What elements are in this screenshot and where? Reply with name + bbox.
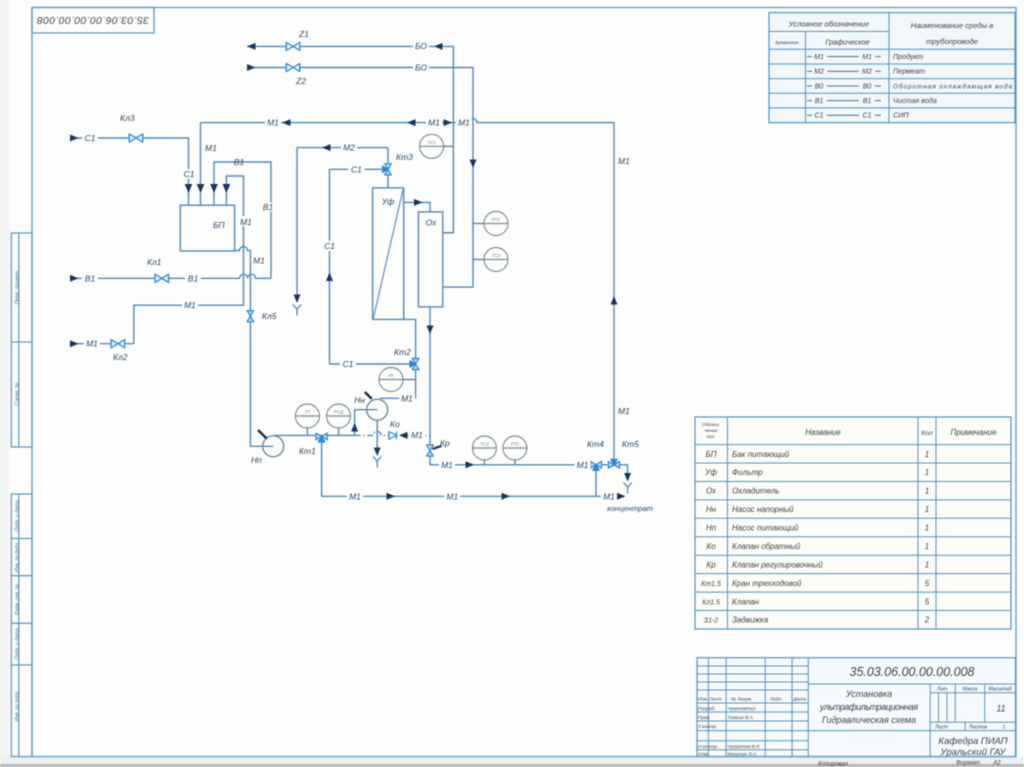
svg-text:Дата: Дата	[793, 697, 807, 703]
svg-text:1: 1	[925, 560, 929, 569]
svg-text:Кт5: Кт5	[622, 439, 639, 449]
svg-text:1: 1	[925, 450, 929, 459]
svg-text:Примечание: Примечание	[950, 428, 997, 437]
svg-text:концентрат: концентрат	[607, 504, 653, 513]
svg-text:В1: В1	[85, 273, 96, 283]
svg-text:Н.контр.: Н.контр.	[698, 744, 718, 750]
svg-text:Задвижка: Задвижка	[732, 616, 769, 625]
svg-text:А2: А2	[992, 761, 1001, 767]
svg-text:М2: М2	[862, 69, 872, 76]
svg-text:В0: В0	[815, 83, 824, 90]
svg-text:М1: М1	[814, 54, 824, 61]
svg-text:Охладитель: Охладитель	[732, 487, 779, 496]
svg-text:Утв.: Утв.	[698, 752, 709, 758]
svg-text:ультрафильтрационная: ультрафильтрационная	[819, 702, 918, 712]
svg-text:С1: С1	[863, 113, 872, 120]
svg-text:М2: М2	[814, 69, 824, 76]
svg-text:Фильтр: Фильтр	[732, 468, 763, 477]
svg-text:2: 2	[924, 616, 930, 625]
svg-text:М1: М1	[349, 491, 361, 501]
svg-text:Кол: Кол	[921, 430, 933, 437]
svg-text:М1: М1	[267, 118, 279, 128]
svg-text:М1: М1	[411, 430, 423, 440]
svg-text:В1: В1	[263, 202, 274, 212]
svg-text:РСД: РСД	[334, 410, 344, 415]
svg-text:поз.: поз.	[707, 435, 716, 440]
svg-text:М1: М1	[618, 406, 630, 416]
svg-text:РI: РI	[389, 373, 394, 378]
svg-text:БО: БО	[415, 41, 427, 51]
svg-text:Уф: Уф	[381, 197, 395, 207]
svg-text:Кт4: Кт4	[587, 439, 604, 449]
svg-text:Обозна-: Обозна-	[702, 422, 721, 428]
svg-text:чение: чение	[704, 429, 717, 434]
svg-text:М1: М1	[441, 460, 453, 470]
svg-text:Уф: Уф	[704, 468, 717, 477]
svg-text:М1: М1	[253, 256, 265, 266]
svg-text:Пров.: Пров.	[698, 715, 711, 721]
svg-text:Оборотная охлаждающая вода: Оборотная охлаждающая вода	[893, 82, 1012, 90]
svg-text:М1: М1	[618, 156, 630, 166]
svg-text:РТ1: РТ1	[492, 217, 501, 222]
svg-text:Подп. и дата: Подп. и дата	[14, 628, 20, 660]
svg-text:Кл1.5: Кл1.5	[702, 599, 720, 606]
svg-text:Перв. примен.: Перв. примен.	[14, 270, 20, 304]
svg-text:Инв. № дубл.: Инв. № дубл.	[14, 542, 20, 573]
svg-text:трубопроводе: трубопроводе	[926, 37, 978, 46]
svg-text:Формат: Формат	[956, 761, 980, 767]
svg-text:1: 1	[925, 505, 929, 514]
svg-text:З1-2: З1-2	[704, 618, 719, 625]
svg-text:Кт3: Кт3	[396, 152, 413, 162]
svg-text:БП: БП	[213, 220, 226, 230]
svg-text:Кр: Кр	[706, 560, 716, 569]
svg-text:Кран трехходовой: Кран трехходовой	[732, 579, 802, 588]
svg-text:М1: М1	[205, 143, 217, 153]
svg-text:Чукреевских: Чукреевских	[728, 706, 757, 712]
svg-text:Т.контр.: Т.контр.	[698, 724, 717, 730]
svg-text:Кафедра ПИАП: Кафедра ПИАП	[938, 736, 1007, 747]
svg-text:М1: М1	[86, 339, 98, 349]
svg-text:М1: М1	[603, 491, 615, 501]
svg-text:С1: С1	[351, 164, 362, 174]
svg-text:Взам. инв. №: Взам. инв. №	[14, 583, 20, 615]
svg-text:11: 11	[996, 704, 1005, 714]
svg-text:БО: БО	[415, 63, 427, 73]
svg-text:СИП: СИП	[893, 111, 909, 120]
svg-text:Разраб.: Разраб.	[698, 706, 715, 712]
svg-text:1: 1	[925, 487, 929, 496]
svg-text:Кт1.5: Кт1.5	[701, 581, 721, 588]
svg-text:ТС1: ТС1	[427, 140, 436, 145]
svg-text:ТС2: ТС2	[492, 253, 501, 258]
svg-text:М1: М1	[240, 217, 252, 227]
svg-text:1: 1	[925, 524, 929, 533]
svg-text:Гидравлическая схема: Гидравлическая схема	[822, 715, 916, 725]
svg-text:В0: В0	[863, 83, 872, 90]
svg-text:Насос напорный: Насос напорный	[732, 505, 794, 514]
svg-text:Клапан регулировочный: Клапан регулировочный	[732, 560, 823, 569]
svg-text:Справ. №: Справ. №	[14, 382, 20, 406]
svg-text:Установка: Установка	[845, 689, 892, 699]
svg-text:М1: М1	[446, 491, 458, 501]
svg-text:ТС3: ТС3	[480, 442, 489, 447]
svg-text:Насос питающий: Насос питающий	[732, 524, 799, 533]
svg-text:РТ2: РТ2	[511, 442, 520, 447]
svg-text:1: 1	[925, 468, 929, 477]
svg-text:Минухин Л.А.: Минухин Л.А.	[728, 752, 758, 758]
svg-text:Наименование среды в: Наименование среды в	[911, 21, 994, 30]
svg-text:М1: М1	[862, 54, 872, 61]
svg-text:Лист: Лист	[934, 725, 948, 731]
svg-text:Лит.: Лит.	[936, 687, 949, 693]
svg-text:Пермеат: Пермеат	[893, 67, 925, 76]
svg-text:В1: В1	[188, 273, 199, 283]
svg-text:Продукт: Продукт	[893, 52, 923, 61]
svg-text:М1: М1	[577, 460, 589, 470]
svg-text:Кл3: Кл3	[120, 113, 135, 123]
svg-text:С1: С1	[184, 169, 195, 179]
svg-text:Подп.: Подп.	[770, 697, 783, 703]
svg-text:С1: С1	[85, 133, 96, 143]
svg-text:Нн: Нн	[354, 395, 365, 405]
svg-text:1: 1	[925, 542, 929, 551]
svg-text:5: 5	[925, 597, 930, 606]
svg-text:М2: М2	[343, 143, 355, 153]
svg-text:Кл5: Кл5	[262, 311, 277, 321]
svg-text:Кл2: Кл2	[113, 352, 128, 362]
svg-text:Клапан: Клапан	[732, 597, 759, 606]
svg-text:Масса: Масса	[963, 687, 978, 693]
svg-text:№ докум.: № докум.	[731, 697, 752, 703]
svg-text:Z1: Z1	[298, 29, 309, 39]
svg-text:Название: Название	[805, 428, 841, 437]
svg-text:Графическое: Графическое	[825, 38, 869, 47]
svg-text:Z2: Z2	[295, 76, 306, 86]
svg-text:Масштаб: Масштаб	[988, 687, 1012, 693]
svg-text:Бак питающий: Бак питающий	[732, 450, 790, 459]
svg-text:Листов: Листов	[968, 725, 988, 731]
svg-text:Нн: Нн	[706, 505, 717, 514]
svg-text:35.03.06.00.00.00.008: 35.03.06.00.00.00.008	[850, 665, 975, 679]
svg-text:Нп: Нп	[706, 524, 717, 533]
svg-text:Кт1: Кт1	[299, 446, 316, 456]
svg-text:Ох: Ох	[706, 487, 717, 496]
svg-text:С1: С1	[343, 359, 354, 369]
svg-text:1: 1	[1003, 725, 1006, 731]
svg-text:Лист: Лист	[709, 697, 722, 703]
svg-text:Ко: Ко	[706, 542, 716, 551]
svg-text:Копировал: Копировал	[818, 762, 848, 767]
svg-text:Чистая вода: Чистая вода	[893, 96, 937, 105]
svg-text:Нусратов В.Р.: Нусратов В.Р.	[728, 744, 761, 750]
svg-text:БП: БП	[705, 450, 716, 459]
svg-text:Уральский ГАУ: Уральский ГАУ	[939, 747, 1006, 758]
svg-text:Подп. и дата: Подп. и дата	[14, 500, 20, 532]
svg-text:Нп: Нп	[251, 455, 262, 465]
svg-text:Кт2: Кт2	[394, 347, 411, 357]
svg-text:Ко: Ко	[390, 419, 400, 429]
svg-text:Ох: Ох	[426, 218, 437, 228]
svg-text:Кл1: Кл1	[147, 257, 162, 267]
svg-text:С1: С1	[815, 113, 824, 120]
svg-text:М1: М1	[458, 118, 470, 128]
svg-text:Изм.: Изм.	[698, 697, 708, 703]
svg-text:Условное обозначение: Условное обозначение	[788, 20, 870, 29]
svg-text:М1: М1	[184, 300, 196, 310]
svg-text:Клапан обратный: Клапан обратный	[732, 542, 801, 551]
svg-text:Буквенное: Буквенное	[775, 40, 799, 46]
svg-text:Кр: Кр	[440, 438, 450, 448]
svg-text:35.03.06.00.00.00.008: 35.03.06.00.00.00.008	[37, 14, 149, 26]
svg-text:В1: В1	[863, 98, 872, 105]
svg-text:5: 5	[925, 579, 930, 588]
svg-text:С1: С1	[324, 241, 335, 251]
svg-text:М1: М1	[401, 393, 413, 403]
svg-text:В1: В1	[815, 98, 824, 105]
svg-text:Инв. № подл.: Инв. № подл.	[14, 690, 20, 721]
svg-text:М1: М1	[428, 118, 440, 128]
svg-text:Тимкин В.А.: Тимкин В.А.	[728, 715, 755, 721]
svg-text:В1: В1	[234, 157, 245, 167]
